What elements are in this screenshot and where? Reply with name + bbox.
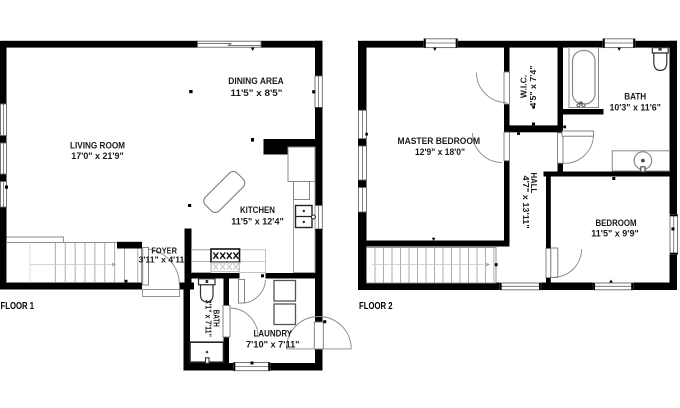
svg-text:BATH: BATH — [624, 92, 646, 102]
svg-text:DINING AREA: DINING AREA — [228, 76, 284, 86]
svg-text:4'7" x 13'11": 4'7" x 13'11" — [521, 176, 531, 229]
svg-text:KITCHEN: KITCHEN — [240, 205, 275, 215]
svg-text:4'5" x 7'4": 4'5" x 7'4" — [528, 66, 538, 108]
svg-text:FLOOR 1: FLOOR 1 — [1, 300, 35, 312]
svg-text:17'0" x 21'9": 17'0" x 21'9" — [71, 151, 124, 161]
svg-text:W.I.C.: W.I.C. — [519, 75, 529, 98]
svg-text:LIVING ROOM: LIVING ROOM — [70, 140, 125, 150]
svg-text:11'5" x 12'4": 11'5" x 12'4" — [231, 216, 284, 226]
svg-text:11'5" x 8'5": 11'5" x 8'5" — [231, 88, 283, 98]
svg-text:3'11" x 4'11": 3'11" x 4'11" — [139, 254, 189, 264]
svg-text:11'5" x 9'9": 11'5" x 9'9" — [591, 228, 639, 238]
svg-text:FLOOR 2: FLOOR 2 — [359, 300, 393, 312]
svg-text:10'3" x 11'6": 10'3" x 11'6" — [609, 103, 661, 113]
svg-text:7'10" x 7'11": 7'10" x 7'11" — [246, 339, 300, 349]
svg-text:MASTER BEDROOM: MASTER BEDROOM — [398, 136, 481, 146]
svg-text:LAUNDRY: LAUNDRY — [254, 328, 293, 338]
svg-text:12'9" x 18'0": 12'9" x 18'0" — [415, 147, 465, 157]
svg-text:BEDROOM: BEDROOM — [596, 218, 637, 228]
svg-text:3'1" x 7'11": 3'1" x 7'11" — [204, 300, 214, 337]
